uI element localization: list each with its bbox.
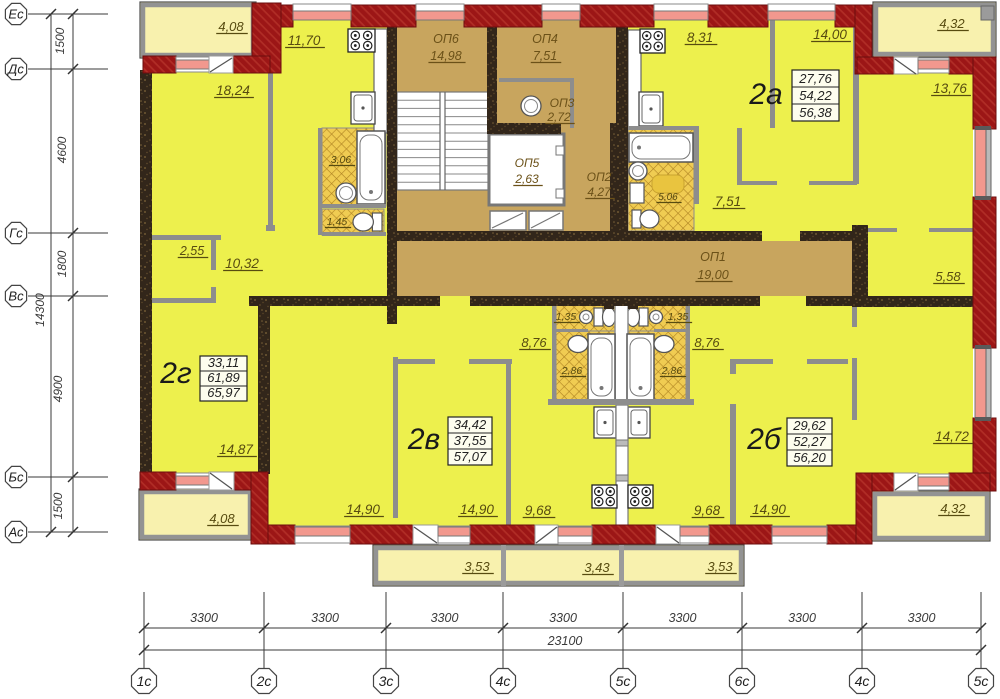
svg-text:6с: 6с xyxy=(735,673,750,689)
svg-text:5с: 5с xyxy=(616,673,631,689)
svg-text:1с: 1с xyxy=(137,673,152,689)
svg-text:ОП6: ОП6 xyxy=(433,32,459,46)
svg-text:3,53: 3,53 xyxy=(707,559,733,574)
svg-text:1,35: 1,35 xyxy=(668,311,689,323)
svg-text:14,98: 14,98 xyxy=(430,49,461,63)
svg-text:5с: 5с xyxy=(974,673,989,689)
svg-text:2с: 2с xyxy=(256,673,272,689)
svg-text:3с: 3с xyxy=(379,673,394,689)
svg-text:5,58: 5,58 xyxy=(935,269,961,284)
svg-text:18,24: 18,24 xyxy=(216,83,250,98)
svg-text:56,38: 56,38 xyxy=(799,105,832,120)
svg-text:8,76: 8,76 xyxy=(521,335,547,350)
svg-text:61,89: 61,89 xyxy=(207,370,240,385)
svg-text:56,20: 56,20 xyxy=(793,450,826,465)
svg-text:4,27: 4,27 xyxy=(587,185,612,199)
svg-text:8,31: 8,31 xyxy=(687,30,713,45)
svg-text:2,72: 2,72 xyxy=(546,110,571,124)
svg-text:Ес: Ес xyxy=(8,7,24,22)
svg-text:3300: 3300 xyxy=(190,611,218,625)
svg-text:34,42: 34,42 xyxy=(454,417,487,432)
svg-text:Ас: Ас xyxy=(7,525,24,540)
svg-text:14300: 14300 xyxy=(33,293,47,327)
svg-text:7,51: 7,51 xyxy=(533,49,557,63)
svg-text:14,00: 14,00 xyxy=(813,27,847,42)
svg-text:8,76: 8,76 xyxy=(694,335,720,350)
svg-text:1800: 1800 xyxy=(55,250,69,277)
svg-text:ОП4: ОП4 xyxy=(532,32,558,46)
svg-text:57,07: 57,07 xyxy=(454,449,487,464)
svg-text:14,90: 14,90 xyxy=(460,502,494,517)
svg-text:ОП5: ОП5 xyxy=(515,156,540,170)
svg-text:2,55: 2,55 xyxy=(179,244,204,258)
svg-text:3300: 3300 xyxy=(549,611,577,625)
svg-text:2в: 2в xyxy=(407,423,440,456)
svg-text:4,32: 4,32 xyxy=(940,501,966,516)
svg-text:9,68: 9,68 xyxy=(694,503,721,518)
svg-text:4,08: 4,08 xyxy=(218,19,244,34)
svg-text:2,86: 2,86 xyxy=(661,365,683,377)
svg-text:7,51: 7,51 xyxy=(715,194,741,209)
svg-text:37,55: 37,55 xyxy=(454,433,487,448)
svg-text:Бс: Бс xyxy=(9,470,24,485)
svg-text:14,90: 14,90 xyxy=(346,502,380,517)
svg-text:65,97: 65,97 xyxy=(207,385,240,400)
svg-text:14,87: 14,87 xyxy=(219,442,253,457)
svg-text:4900: 4900 xyxy=(51,375,65,402)
svg-text:2а: 2а xyxy=(748,78,782,111)
svg-text:2б: 2б xyxy=(746,423,782,456)
svg-text:23100: 23100 xyxy=(547,634,583,648)
svg-text:1500: 1500 xyxy=(53,27,67,54)
svg-text:52,27: 52,27 xyxy=(793,434,826,449)
svg-text:3300: 3300 xyxy=(431,611,459,625)
svg-text:2,86: 2,86 xyxy=(561,365,583,377)
svg-text:3,43: 3,43 xyxy=(584,560,610,575)
svg-text:ОП2: ОП2 xyxy=(587,170,612,184)
svg-text:4600: 4600 xyxy=(55,136,69,163)
svg-text:5,06: 5,06 xyxy=(658,192,678,203)
svg-text:3300: 3300 xyxy=(908,611,936,625)
svg-text:2,63: 2,63 xyxy=(514,172,539,186)
svg-text:Гс: Гс xyxy=(9,226,23,241)
svg-text:2г: 2г xyxy=(159,357,192,390)
svg-text:1,35: 1,35 xyxy=(556,311,577,323)
svg-text:Дс: Дс xyxy=(6,62,24,77)
svg-text:4,32: 4,32 xyxy=(939,16,965,31)
svg-text:19,00: 19,00 xyxy=(697,268,728,282)
svg-text:29,62: 29,62 xyxy=(792,418,826,433)
svg-text:10,32: 10,32 xyxy=(225,256,259,271)
svg-text:14,90: 14,90 xyxy=(752,502,786,517)
svg-text:33,11: 33,11 xyxy=(208,355,240,370)
svg-text:9,68: 9,68 xyxy=(525,503,552,518)
svg-text:ОП1: ОП1 xyxy=(700,250,726,264)
svg-text:54,22: 54,22 xyxy=(799,88,832,103)
svg-text:11,70: 11,70 xyxy=(288,33,321,48)
svg-text:3,06: 3,06 xyxy=(331,154,352,166)
svg-text:3300: 3300 xyxy=(669,611,697,625)
svg-text:1500: 1500 xyxy=(51,492,65,519)
svg-text:27,76: 27,76 xyxy=(798,71,832,86)
svg-text:14,72: 14,72 xyxy=(935,429,969,444)
svg-text:4с: 4с xyxy=(496,673,511,689)
svg-text:3,53: 3,53 xyxy=(464,559,490,574)
svg-text:ОП3: ОП3 xyxy=(550,96,575,110)
svg-text:1,45: 1,45 xyxy=(327,216,348,228)
svg-text:4с: 4с xyxy=(855,673,870,689)
svg-text:13,76: 13,76 xyxy=(933,81,967,96)
svg-text:3300: 3300 xyxy=(311,611,339,625)
svg-text:4,08: 4,08 xyxy=(209,511,235,526)
svg-text:3300: 3300 xyxy=(788,611,816,625)
svg-text:Вс: Вс xyxy=(8,289,24,304)
